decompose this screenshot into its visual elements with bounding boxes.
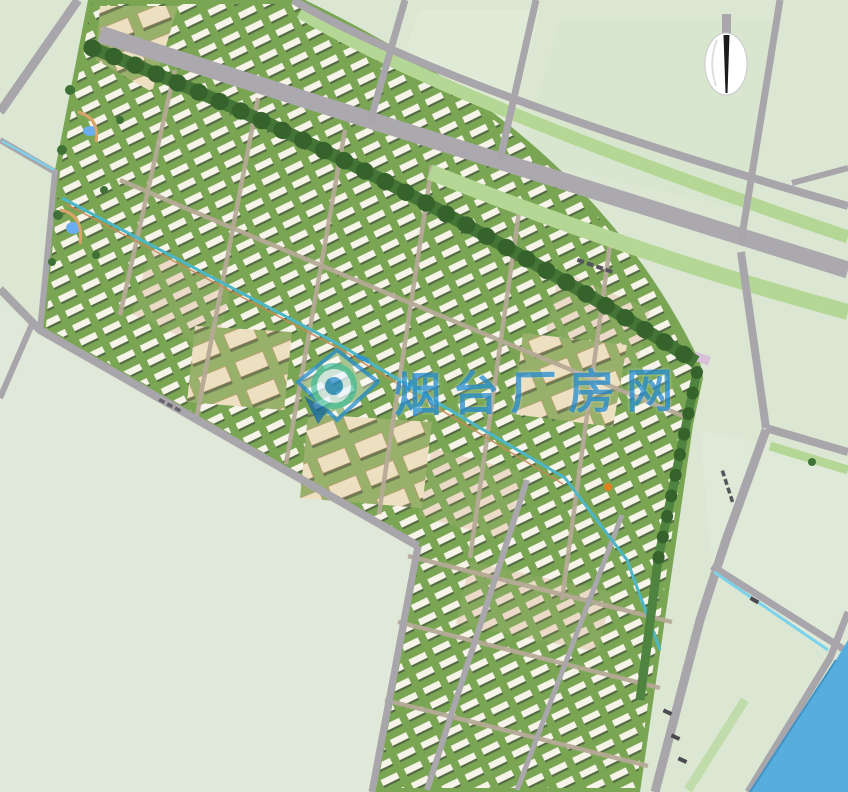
orange-marker [604, 483, 612, 491]
site-plan-canvas [0, 0, 848, 792]
site-plan-map: 烟台厂房网 [0, 0, 848, 792]
